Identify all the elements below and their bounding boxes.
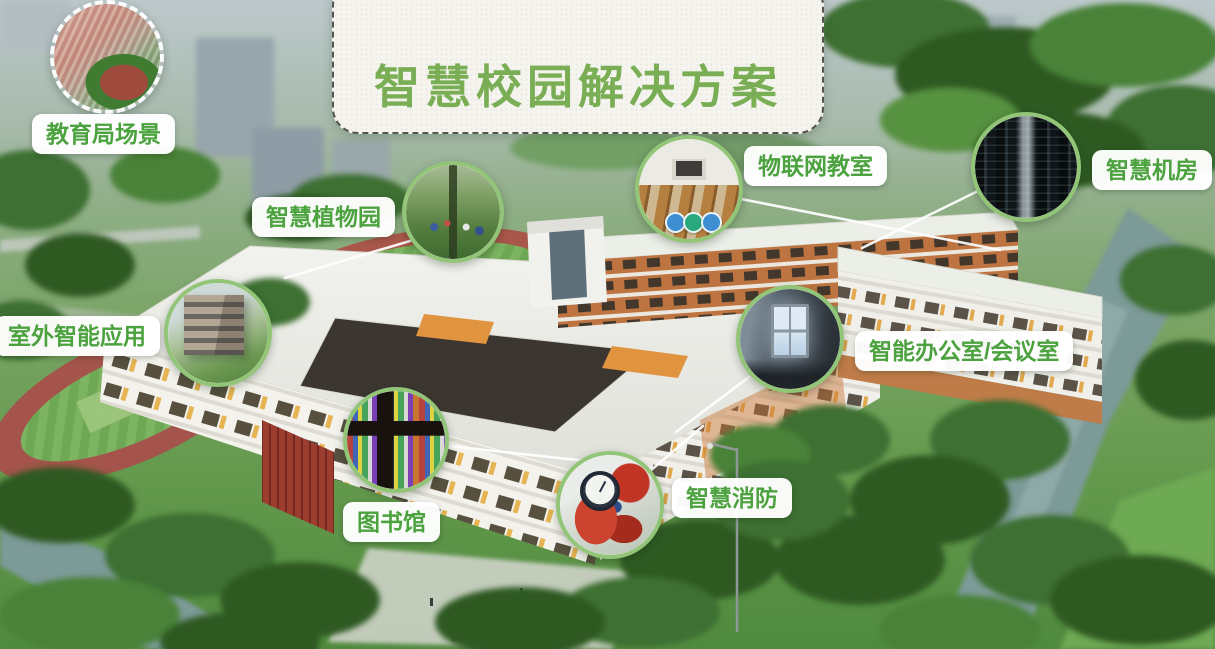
- campus-building-exterior-photo: [168, 283, 268, 383]
- callout-label-fire-protection: 智慧消防: [672, 478, 792, 518]
- pressure-gauge-shape: [580, 471, 620, 511]
- classroom-interior-photo: [639, 139, 739, 239]
- callout-label-education-bureau: 教育局场景: [32, 114, 175, 154]
- server-racks-photo: [975, 116, 1077, 218]
- callout-label-iot-classroom: 物联网教室: [744, 146, 887, 186]
- label-text: 教育局场景: [46, 121, 161, 147]
- label-text: 智能办公室/会议室: [869, 338, 1059, 364]
- callout-photo-office-meeting-room[interactable]: [736, 285, 844, 393]
- title-banner: 智慧校园解决方案: [332, 0, 824, 134]
- callout-label-outdoor-smart-apps: 室外智能应用: [0, 316, 160, 356]
- fire-equipment-photo: [560, 455, 660, 555]
- callout-photo-library[interactable]: [343, 387, 449, 493]
- callout-label-server-room: 智慧机房: [1092, 150, 1212, 190]
- callout-photo-education-bureau[interactable]: [50, 0, 164, 114]
- meeting-room-photo: [740, 289, 840, 389]
- app-icon: [701, 212, 722, 233]
- window-shape: [771, 304, 809, 358]
- callout-photo-botanical-garden[interactable]: [402, 161, 504, 263]
- school-campus-aerial-photo: [54, 4, 160, 110]
- label-text: 图书馆: [357, 509, 426, 535]
- smart-campus-solution-diagram: 智慧校园解决方案 教育局场景 智慧植物园 物联网教室 智慧机房 室外智能应用: [0, 0, 1215, 649]
- label-text: 物联网教室: [758, 153, 873, 179]
- callout-label-botanical-garden: 智慧植物园: [252, 197, 395, 237]
- callout-photo-iot-classroom[interactable]: [635, 135, 743, 243]
- bookshelf-photo: [347, 391, 445, 489]
- callout-photo-outdoor-smart-apps[interactable]: [164, 279, 272, 387]
- page-title: 智慧校园解决方案: [374, 64, 782, 110]
- label-text: 室外智能应用: [8, 323, 146, 349]
- callout-photo-fire-protection[interactable]: [556, 451, 664, 559]
- callout-label-library: 图书馆: [343, 502, 440, 542]
- building-shape: [184, 295, 244, 355]
- callout-label-office-meeting-room: 智能办公室/会议室: [855, 331, 1073, 371]
- label-text: 智慧机房: [1106, 157, 1198, 183]
- callout-photo-server-room[interactable]: [971, 112, 1081, 222]
- label-text: 智慧植物园: [266, 204, 381, 230]
- label-text: 智慧消防: [686, 485, 778, 511]
- botanical-garden-photo: [406, 165, 500, 259]
